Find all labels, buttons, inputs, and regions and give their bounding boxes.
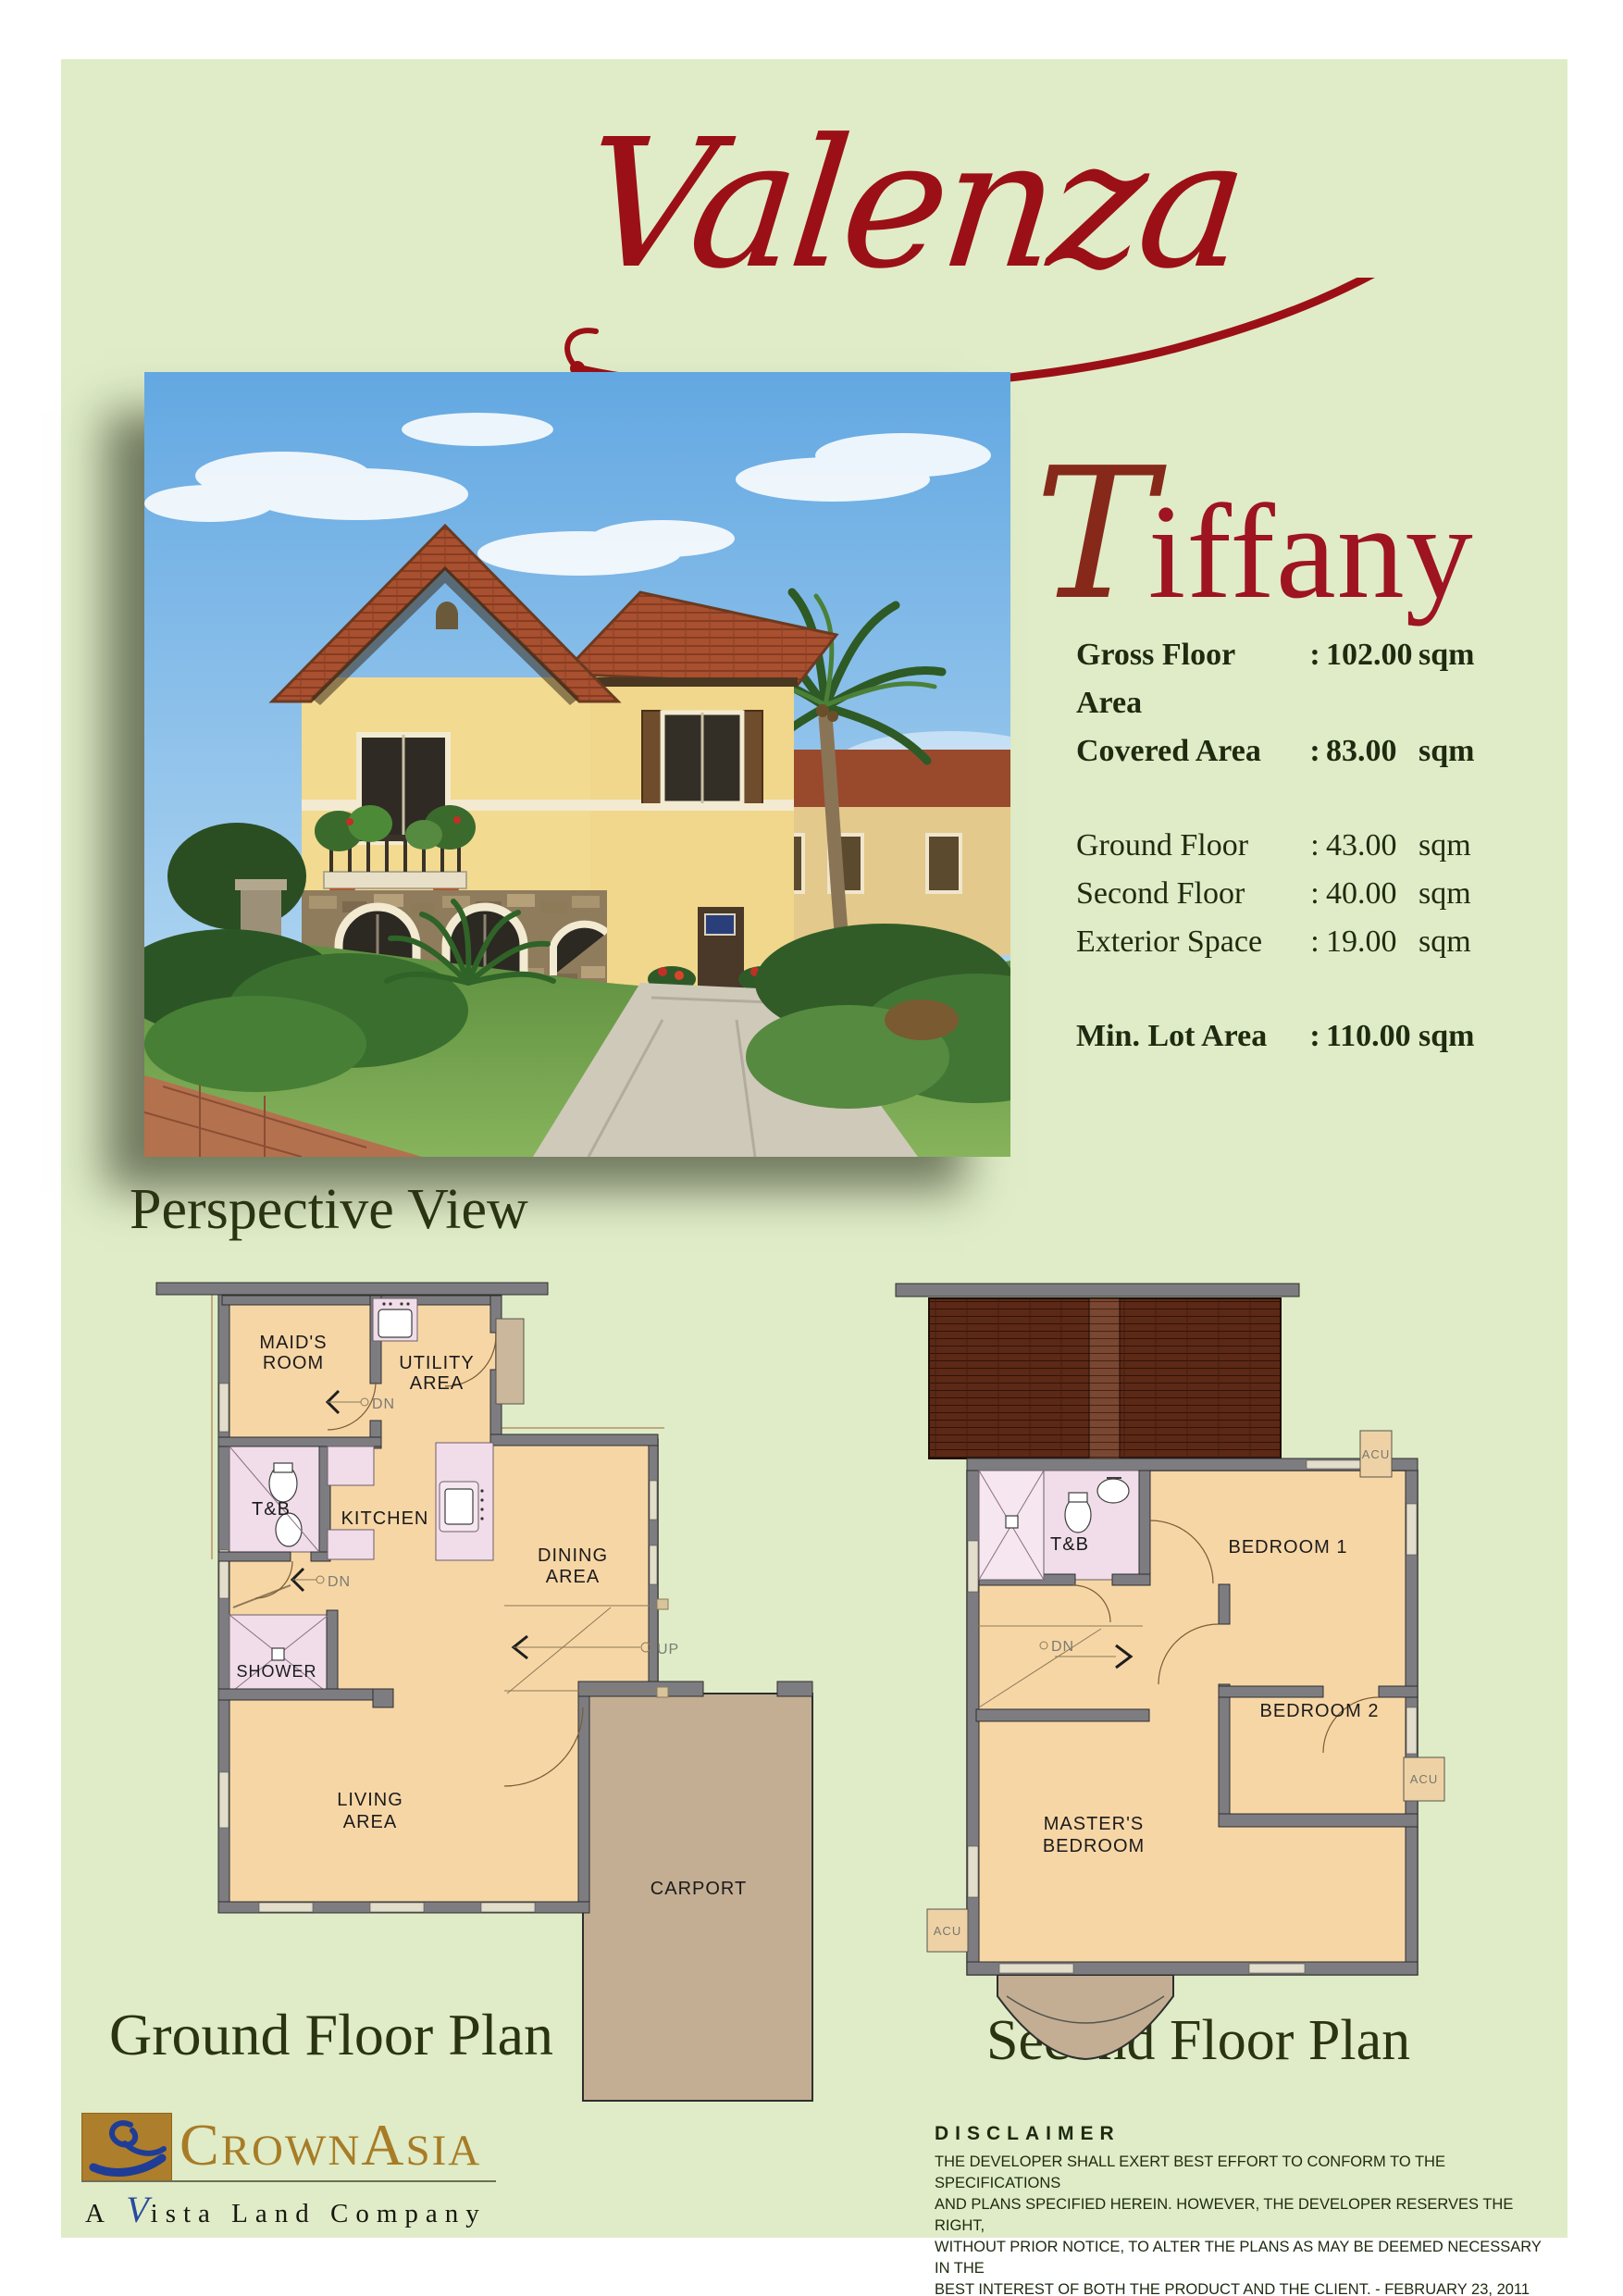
spec-label: Min. Lot Area [1076, 1012, 1304, 1061]
stair-marker-dn3: DN [1051, 1639, 1074, 1655]
flyer-page: Valenza [61, 59, 1567, 2238]
model-rest: iffany [1148, 477, 1474, 627]
logo-tagline: A Vista Land Company [85, 2188, 511, 2231]
spec-row: Min. Lot Area : 110.00 sqm [1076, 1012, 1576, 1061]
model-initial: T [1035, 429, 1148, 640]
room-label-maids: MAID'S [259, 1333, 327, 1353]
disclaimer: DISCLAIMER THE DEVELOPER SHALL EXERT BES… [935, 2123, 1545, 2296]
room-label-shower: SHOWER [237, 1662, 317, 1681]
ribbon-icon [82, 2114, 171, 2180]
spec-label: Second Floor [1076, 870, 1304, 918]
room-label-dining2: AREA [546, 1567, 600, 1587]
spec-row: Exterior Space : 19.00 sqm [1076, 918, 1576, 966]
room-label-dining: DINING [538, 1545, 608, 1566]
second-floor-plan: T&B BEDROOM 1 BEDROOM 2 MASTER'S BEDROOM… [888, 1272, 1481, 2105]
spec-row: Second Floor : 40.00 sqm [1076, 870, 1576, 918]
wordmark-sia: SIA [406, 2127, 482, 2175]
tagline-rest: ista Land Company [151, 2199, 487, 2228]
disclaimer-line: THE DEVELOPER SHALL EXERT BEST EFFORT TO… [935, 2152, 1545, 2194]
room-label-bedroom1: BEDROOM 1 [1228, 1537, 1347, 1558]
spec-unit: sqm [1419, 727, 1576, 776]
house-illustration [144, 372, 1010, 1157]
spec-label: Gross Floor Area [1076, 631, 1304, 727]
balcony [997, 1975, 1173, 2059]
spec-unit: sqm [1419, 870, 1576, 918]
disclaimer-line: AND PLANS SPECIFIED HEREIN. HOWEVER, THE… [935, 2194, 1545, 2237]
spec-row: Ground Floor : 43.00 sqm [1076, 822, 1576, 870]
spec-colon: : [1304, 631, 1326, 727]
room-label-living: LIVING [337, 1790, 403, 1810]
room-label-tb2: T&B [1050, 1534, 1089, 1555]
disclaimer-line: BEST INTEREST OF BOTH THE PRODUCT AND TH… [935, 2279, 1545, 2296]
wordmark-c: C [180, 2112, 221, 2178]
spec-value: 83.00 [1326, 727, 1419, 776]
spec-colon: : [1304, 1012, 1326, 1061]
ground-floor-plan: MAID'S ROOM UTILITY AREA T&B KITCHEN DIN… [93, 1272, 824, 2105]
spec-colon: : [1304, 870, 1326, 918]
room-label-maids2: ROOM [263, 1353, 324, 1373]
spec-colon: : [1304, 918, 1326, 966]
tagline-a: A [85, 2199, 112, 2228]
room-label-bedroom2: BEDROOM 2 [1259, 1701, 1379, 1721]
room-label-kitchen: KITCHEN [341, 1508, 429, 1529]
wordmark-rown: ROWN [221, 2127, 362, 2175]
crownasia-wordmark: CROWNASIA [180, 2116, 568, 2191]
spec-label: Covered Area [1076, 727, 1304, 776]
caption-perspective: Perspective View [130, 1177, 528, 1243]
spec-row: Covered Area : 83.00 sqm [1076, 727, 1576, 776]
spec-value: 110.00 [1326, 1012, 1419, 1061]
spec-colon: : [1304, 822, 1326, 870]
room-label-masters: MASTER'S [1044, 1814, 1145, 1834]
stair-marker-dn: DN [372, 1396, 395, 1412]
spec-row: Gross Floor Area : 102.00 sqm [1076, 631, 1576, 727]
disclaimer-line: WITHOUT PRIOR NOTICE, TO ALTER THE PLANS… [935, 2237, 1545, 2279]
model-name: Tiffany [1035, 429, 1571, 642]
spec-value: 19.00 [1326, 918, 1419, 966]
spec-value: 102.00 [1326, 631, 1419, 727]
room-label-utility2: AREA [410, 1373, 464, 1394]
spec-unit: sqm [1419, 822, 1576, 870]
spec-label: Exterior Space [1076, 918, 1304, 966]
stair-marker-up: UP [657, 1642, 679, 1657]
room-label-carport: CARPORT [650, 1879, 747, 1899]
acu-label-top: ACU [1362, 1447, 1390, 1461]
spec-unit: sqm [1419, 918, 1576, 966]
spec-unit: sqm [1419, 1012, 1576, 1061]
tagline-v: V [126, 2189, 150, 2230]
spec-unit: sqm [1419, 631, 1576, 727]
spec-table: Gross Floor Area : 102.00 sqm Covered Ar… [1076, 631, 1576, 1061]
disclaimer-title: DISCLAIMER [935, 2123, 1545, 2145]
flyer-canvas: Valenza [0, 0, 1623, 2296]
crownasia-logo-mark [81, 2113, 172, 2181]
spec-label: Ground Floor [1076, 822, 1304, 870]
logo-divider [81, 2180, 496, 2182]
spec-colon: : [1304, 727, 1326, 776]
room-label-tb: T&B [252, 1499, 291, 1520]
spec-value: 40.00 [1326, 870, 1419, 918]
spec-value: 43.00 [1326, 822, 1419, 870]
room-label-living2: AREA [343, 1812, 397, 1832]
room-label-utility: UTILITY [399, 1353, 474, 1373]
acu-label-right: ACU [1410, 1772, 1438, 1786]
perspective-photo [144, 372, 1010, 1157]
acu-label-left: ACU [934, 1924, 961, 1938]
wordmark-a: A [361, 2112, 405, 2178]
room-label-masters2: BEDROOM [1043, 1836, 1145, 1856]
stair-marker-dn2: DN [328, 1574, 351, 1590]
